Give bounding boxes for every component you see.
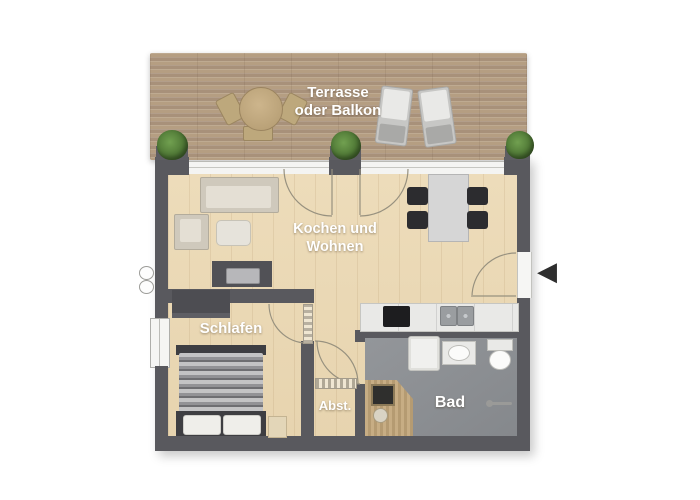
dining-chair [407, 211, 428, 229]
room-label-bedroom: Schlafen [186, 320, 276, 338]
bed-blanket [179, 353, 263, 413]
door-handle-icon [490, 402, 512, 405]
nightstand [268, 416, 287, 438]
room-label-storage: Abst. [311, 398, 359, 414]
wall-vent-icon [139, 280, 154, 294]
shower [408, 336, 440, 371]
floor-plan-canvas: Terrasse oder Balkon [0, 0, 700, 500]
armchair-cushion [180, 219, 201, 242]
cooktop [383, 306, 410, 327]
tv [226, 268, 260, 284]
dining-table [428, 174, 469, 242]
plant-bush-icon [157, 130, 188, 160]
bed-pillow [223, 415, 261, 435]
kitchen-sink [440, 306, 457, 326]
wardrobe [172, 290, 230, 318]
room-label-bath: Bad [424, 393, 476, 413]
wall-right [517, 174, 530, 252]
wall-bedroom-hall [301, 341, 314, 436]
bathroom-sink-bowl [448, 345, 470, 361]
wall-vent-icon [139, 266, 154, 280]
room-label-terrace: Terrasse oder Balkon [253, 84, 423, 121]
terrace-label-line1: Terrasse [253, 84, 423, 102]
terrace-label-line2: oder Balkon [253, 102, 423, 120]
coffee-table [216, 220, 251, 246]
sofa-cushion [206, 186, 271, 208]
plant-bush-icon [331, 131, 361, 160]
wall-left [155, 366, 168, 436]
bedroom-door-leaf [303, 304, 313, 344]
sauna-heater [371, 384, 395, 406]
living-label-line2: Wohnen [265, 239, 405, 257]
plant-bush-icon [506, 131, 534, 159]
wall-bottom [155, 436, 530, 451]
dining-chair [467, 211, 488, 229]
dining-chair [407, 187, 428, 205]
sauna-light [373, 408, 388, 423]
kitchen-sink [457, 306, 474, 326]
bed-pillow [183, 415, 221, 435]
entry-doorway [517, 252, 532, 298]
storage-door-threshold [315, 378, 357, 389]
wall-left [155, 174, 168, 318]
toilet-bowl [489, 350, 511, 370]
room-label-living: Kochen und Wohnen [265, 221, 405, 256]
entry-arrow-icon: ◀ [537, 258, 557, 284]
dining-chair [467, 187, 488, 205]
bedroom-window [150, 318, 170, 368]
living-label-line1: Kochen und [265, 221, 405, 239]
